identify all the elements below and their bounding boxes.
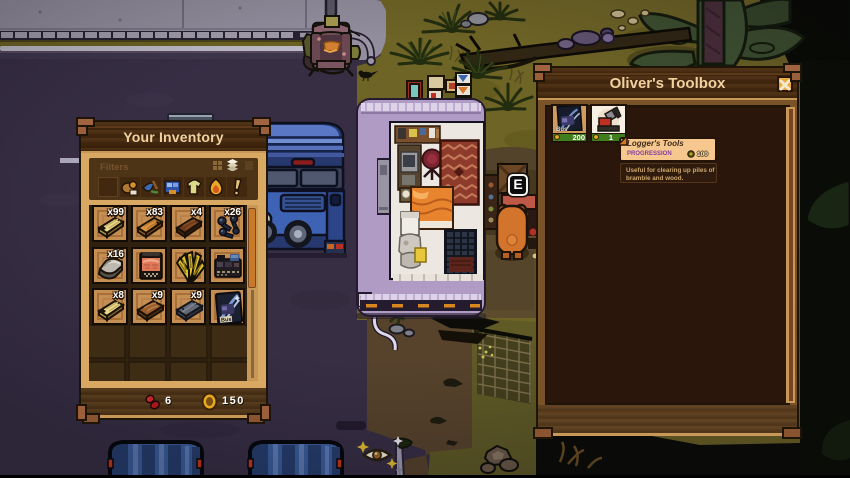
svg-text:Bus: Bus xyxy=(221,317,232,324)
